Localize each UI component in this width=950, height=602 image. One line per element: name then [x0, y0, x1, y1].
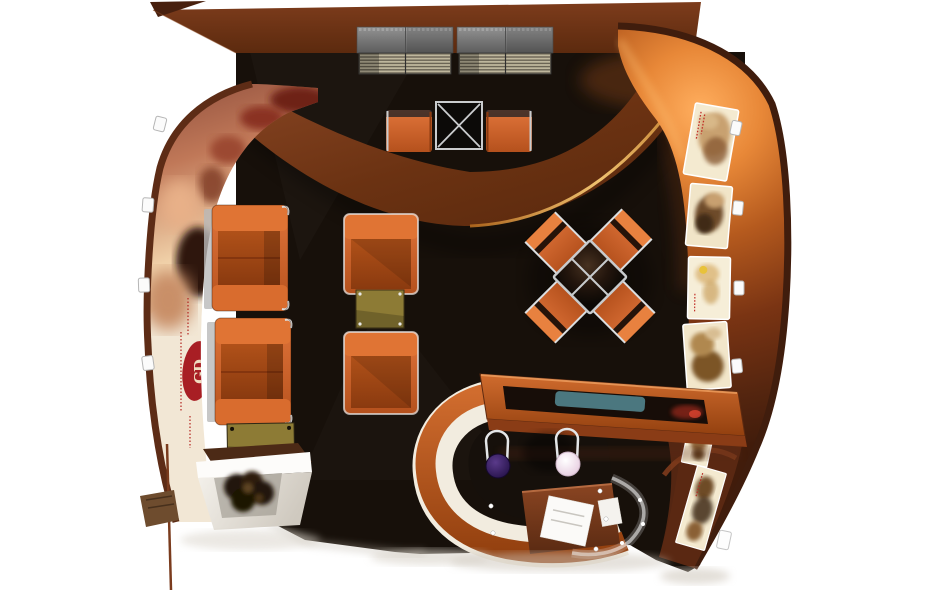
poster-4: [683, 322, 731, 391]
clip-light: [730, 120, 743, 136]
louver-cabinet-a: [357, 27, 453, 74]
armchair-b: [344, 332, 418, 414]
meeting-table: [436, 102, 482, 149]
clip-light: [142, 355, 155, 370]
booth-render: GD: [0, 0, 950, 602]
desk-slip: [598, 497, 622, 526]
clip-light: [731, 359, 742, 374]
armchair-a: [344, 214, 418, 294]
side-table-gold: [356, 290, 404, 328]
sofa-2: [207, 318, 291, 425]
clip-light: [734, 281, 744, 295]
clip-light: [732, 201, 743, 216]
clip-light: [138, 278, 149, 292]
poster-3: [687, 257, 730, 320]
louver-cabinet-b: [457, 27, 553, 74]
chair-top-left: [386, 110, 432, 152]
sofa-1: [204, 205, 288, 311]
render-canvas: GD: [0, 0, 950, 602]
clip-light: [142, 198, 154, 213]
stool-purple-seat: [486, 454, 510, 478]
desk-paper: [540, 496, 594, 547]
poster-2: [685, 183, 732, 248]
stool-white-seat: [556, 452, 580, 476]
chair-top-right: [486, 110, 532, 152]
